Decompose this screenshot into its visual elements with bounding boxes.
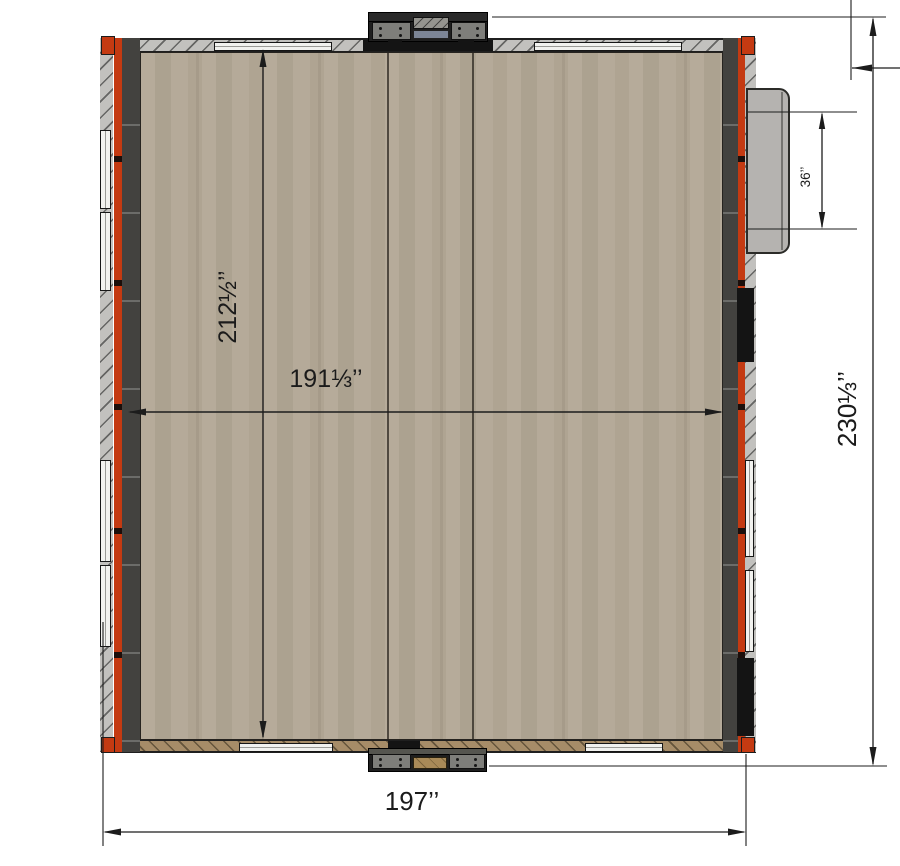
dim-label-floor-length: 212½’’ [214,259,242,355]
floor-plan-drawing: 212½’’ 191⅓’’ 36’’ 230⅓’’ 197’’ [0,0,900,866]
dim-label-overall-width: 197’’ [362,787,462,815]
dim-label-floor-width: 191⅓’’ [266,364,386,394]
arrow-down-icon [819,212,825,229]
arrow-left-icon [103,829,121,836]
arrow-right-icon [728,829,746,836]
arrow-up-icon [819,112,825,129]
arrow-down-icon [870,747,877,766]
dim-label-door-opening: 36’’ [791,154,819,200]
arrow-left-icon [128,409,146,416]
arrow-up-icon [260,49,267,67]
arrow-right-icon [705,409,723,416]
dimension-lines-layer [0,0,900,866]
arrow-up-icon [870,17,877,36]
arrow-left-icon [852,65,872,72]
dim-label-overall-length: 230⅓’’ [832,351,862,467]
arrow-down-icon [260,721,267,739]
